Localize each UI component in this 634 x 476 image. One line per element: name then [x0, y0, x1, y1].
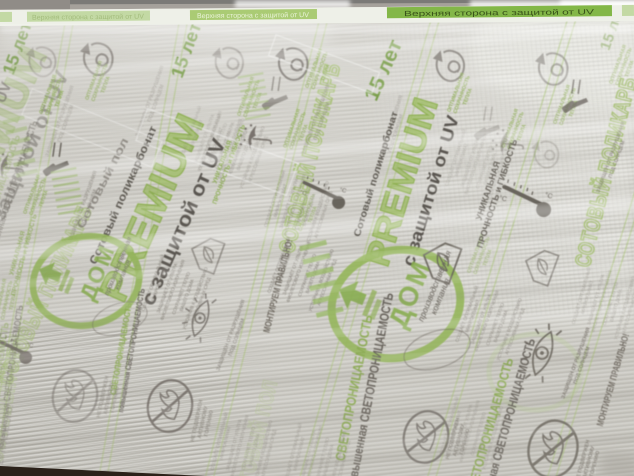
svg-text:Верхняя сторона с защитой от U: Верхняя сторона с защитой от UV: [197, 11, 309, 20]
svg-text:Верхняя сторона с защитой от U: Верхняя сторона с защитой от UV: [404, 7, 594, 18]
svg-text:Верхняя сторона с защитой от U: Верхняя сторона с защитой от UV: [32, 13, 144, 22]
